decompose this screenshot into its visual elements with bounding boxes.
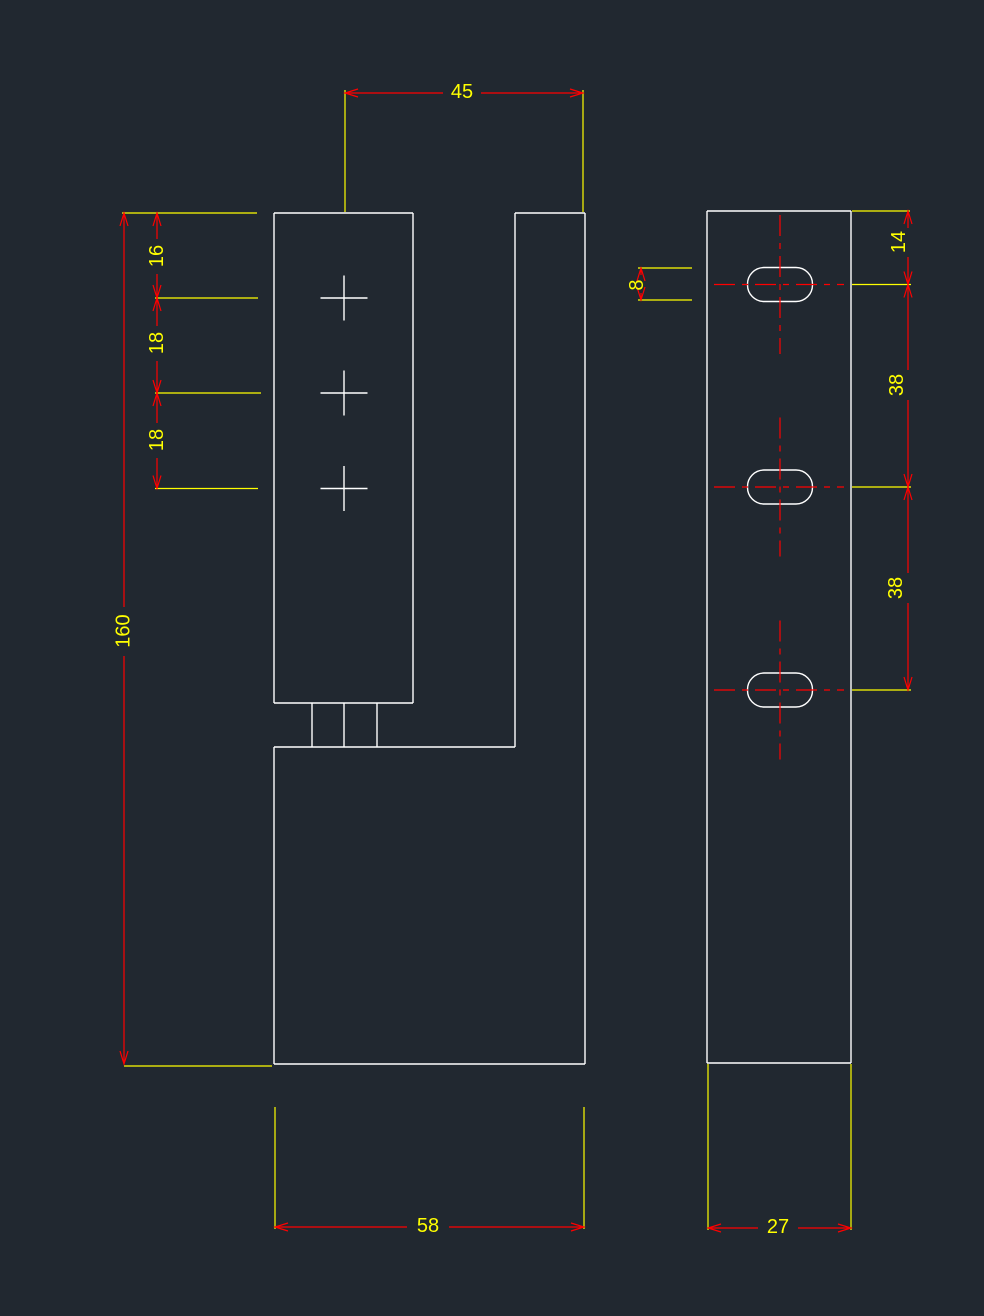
- dimension-16-18-18[interactable]: 16 18 18: [122, 213, 261, 489]
- dim-text-14[interactable]: 14: [888, 231, 910, 253]
- dim-text-27[interactable]: 27: [767, 1216, 789, 1238]
- dim-text-18[interactable]: 18: [146, 429, 168, 451]
- hole-center-marks[interactable]: [321, 276, 368, 512]
- dim-text-58[interactable]: 58: [417, 1215, 439, 1237]
- dim-text-8[interactable]: 8: [626, 279, 648, 290]
- front-view-geometry[interactable]: [274, 213, 585, 1064]
- dimension-8[interactable]: 8: [626, 268, 692, 300]
- dim-text-18[interactable]: 18: [146, 332, 168, 354]
- cad-drawing-canvas[interactable]: 45 16 18 18 160 58: [0, 0, 984, 1316]
- dim-text-38[interactable]: 38: [885, 577, 907, 599]
- slot-centerlines[interactable]: [714, 215, 844, 760]
- dimension-27[interactable]: 27: [708, 1064, 851, 1238]
- cad-drawing: 45 16 18 18 160 58: [0, 0, 984, 1316]
- dimension-14-38-38[interactable]: 14 38 38: [852, 211, 912, 690]
- dim-text-160[interactable]: 160: [113, 614, 135, 647]
- dimension-58[interactable]: 58: [275, 1107, 584, 1237]
- dim-text-38[interactable]: 38: [886, 374, 908, 396]
- dimension-45[interactable]: 45: [345, 81, 583, 212]
- dim-text-45[interactable]: 45: [451, 81, 473, 103]
- side-view-geometry[interactable]: [707, 211, 851, 1063]
- dim-text-16[interactable]: 16: [146, 245, 168, 267]
- dimension-160[interactable]: 160: [113, 213, 273, 1066]
